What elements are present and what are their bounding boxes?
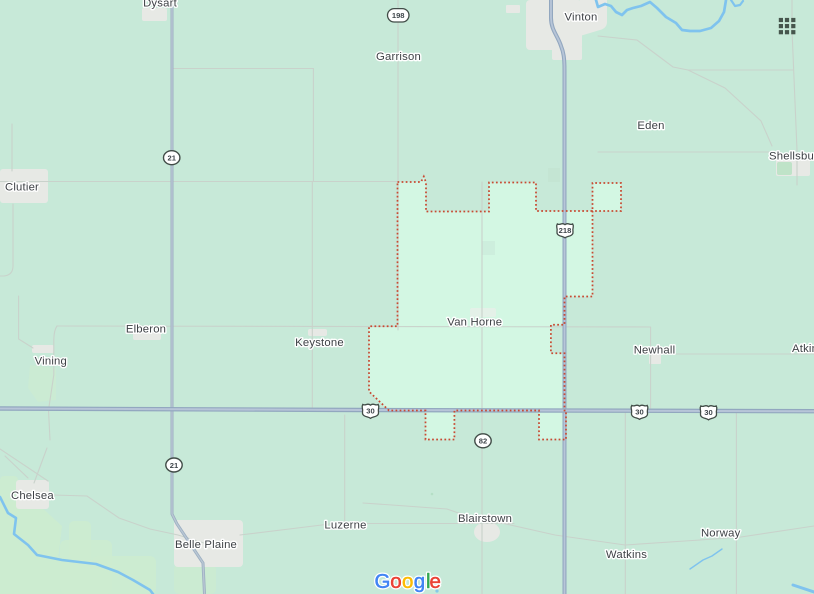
svg-text:Belle Plaine: Belle Plaine <box>175 539 237 551</box>
svg-text:e: e <box>430 570 441 593</box>
svg-text:Blairstown: Blairstown <box>458 513 512 525</box>
svg-text:21: 21 <box>170 461 179 470</box>
svg-text:g: g <box>414 570 425 593</box>
svg-text:Luzerne: Luzerne <box>324 520 366 532</box>
svg-text:21: 21 <box>167 154 176 163</box>
svg-text:82: 82 <box>479 437 487 446</box>
svg-text:30: 30 <box>704 408 712 417</box>
svg-text:30: 30 <box>635 408 643 417</box>
svg-text:o: o <box>390 570 401 593</box>
svg-text:Keystone: Keystone <box>295 337 344 349</box>
svg-text:Chelsea: Chelsea <box>11 490 54 502</box>
svg-text:Shellsburg: Shellsburg <box>769 151 814 163</box>
svg-text:Atkins: Atkins <box>792 343 814 355</box>
svg-text:Van Horne: Van Horne <box>447 317 502 329</box>
svg-text:Vining: Vining <box>35 356 67 368</box>
svg-text:Watkins: Watkins <box>606 549 647 561</box>
svg-text:Elberon: Elberon <box>126 324 166 336</box>
svg-text:Vinton: Vinton <box>564 12 597 24</box>
svg-text:Newhall: Newhall <box>634 345 676 357</box>
svg-text:198: 198 <box>392 11 405 20</box>
svg-text:Norway: Norway <box>701 528 741 540</box>
svg-text:Garrison: Garrison <box>376 51 421 63</box>
svg-text:218: 218 <box>559 226 572 235</box>
svg-text:Clutier: Clutier <box>5 182 39 194</box>
svg-text:Dysart: Dysart <box>143 0 177 10</box>
svg-text:G: G <box>375 570 391 593</box>
svg-text:Eden: Eden <box>637 120 664 132</box>
svg-text:30: 30 <box>366 407 374 416</box>
svg-text:o: o <box>402 570 413 593</box>
